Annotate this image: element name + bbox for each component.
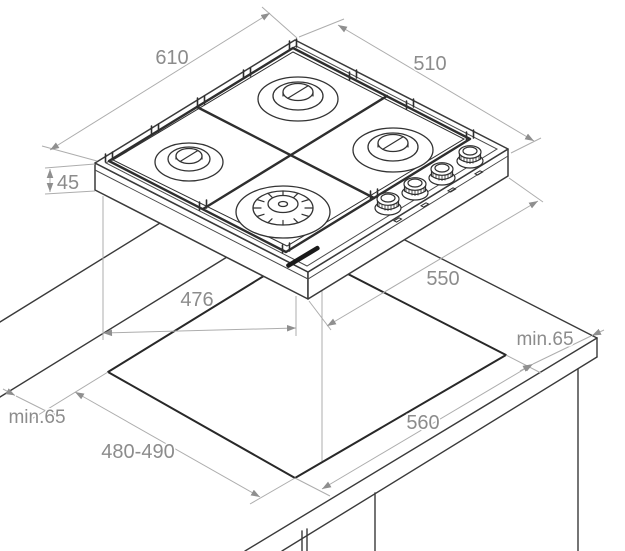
gas-hob [95,39,508,299]
hob-body-width-label: 550 [426,268,459,290]
wall-line [0,223,160,322]
knob-1 [375,193,401,215]
clearance-back-left-label: min.65 [8,407,65,428]
knob-4 [457,146,483,168]
dim-cutout-width: 560 [295,355,541,496]
dim-clearance-back-left: min.65 [3,372,108,428]
burner-back [258,77,338,121]
dim-cutout-depth: 480-490 [75,392,295,504]
knob-3 [429,163,455,185]
hob-height-label: 45 [57,172,79,194]
counter-front-edge [245,338,597,551]
cutout-width-label: 560 [406,412,439,434]
hob-depth-label: 510 [413,53,446,75]
knob-2 [402,178,428,200]
cabinet [302,369,578,551]
burner-front-wok [236,186,330,238]
counter-front-bottom-edge [282,357,597,551]
burner-right [353,128,433,172]
cabinet-front-left-edge [302,529,307,551]
burner-left [155,143,223,181]
cutout-depth-label: 480-490 [101,441,174,463]
diagram-svg: min.65 480-490 560 min.65 [0,0,625,551]
clearance-right-label: min.65 [516,329,573,350]
installation-diagram: min.65 480-490 560 min.65 [0,0,625,551]
hob-body-depth-label: 476 [180,289,213,311]
hob-width-label: 610 [155,47,188,69]
dim-hob-height: 45 [45,164,95,194]
